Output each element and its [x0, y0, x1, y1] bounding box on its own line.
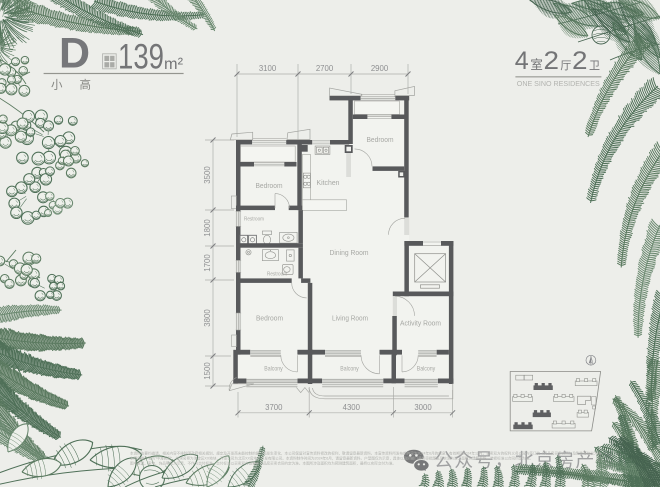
svg-text:本项目推广名为"中海官邸"，地块名称为海淀区XX地块，开发公: 本项目推广名为"中海官邸"，地块名称为海淀区XX地块，开发公司为北京XX房地产开… — [130, 456, 533, 461]
svg-text:Bedroom: Bedroom — [256, 181, 283, 190]
svg-text:1800: 1800 — [203, 219, 212, 237]
svg-text:ONE SINO RESIDENCES: ONE SINO RESIDENCES — [517, 79, 600, 88]
svg-text:卫: 卫 — [589, 60, 600, 72]
svg-text:Balcony: Balcony — [264, 366, 283, 373]
svg-text:2: 2 — [544, 47, 560, 75]
svg-text:Dining Room: Dining Room — [330, 248, 369, 257]
svg-text:Restroom: Restroom — [244, 217, 264, 223]
svg-text:小: 小 — [51, 79, 63, 92]
svg-text:3700: 3700 — [265, 403, 283, 412]
svg-text:4: 4 — [515, 47, 529, 75]
svg-text:Bedroom: Bedroom — [256, 314, 283, 323]
svg-text:4300: 4300 — [343, 403, 361, 412]
svg-text:D: D — [59, 30, 90, 78]
svg-text:本资料为要约邀请，相关内容不排除因政府相关规划、规定及开发商: 本资料为要约邀请，相关内容不排除因政府相关规划、规定及开发商未能控制的原因而发生… — [130, 451, 605, 456]
svg-text:3100: 3100 — [259, 64, 277, 73]
svg-text:1500: 1500 — [203, 362, 212, 380]
svg-text:139: 139 — [118, 38, 164, 77]
svg-text:3000: 3000 — [414, 403, 432, 412]
svg-text:Balcony: Balcony — [417, 366, 436, 373]
svg-text:室: 室 — [530, 57, 543, 72]
svg-text:3800: 3800 — [203, 309, 212, 327]
svg-text:Kitchen: Kitchen — [317, 178, 340, 187]
svg-text:2700: 2700 — [316, 64, 334, 73]
svg-text:m²: m² — [164, 56, 184, 73]
svg-text:Bedroom: Bedroom — [367, 135, 394, 144]
svg-text:1700: 1700 — [203, 254, 212, 272]
svg-text:图中家具、家电、饰品等仅为示意，不作为交付标准。交付标准以买: 图中家具、家电、饰品等仅为示意，不作为交付标准。交付标准以买卖双方签署的商品房买… — [130, 461, 396, 466]
svg-text:Living Room: Living Room — [332, 314, 368, 323]
svg-text:2: 2 — [572, 47, 588, 75]
svg-text:厅: 厅 — [560, 60, 571, 72]
svg-text:Balcony: Balcony — [340, 366, 359, 373]
svg-text:高: 高 — [80, 78, 92, 92]
svg-text:3500: 3500 — [203, 166, 212, 184]
svg-text:Restroom: Restroom — [267, 272, 287, 278]
svg-text:2900: 2900 — [371, 64, 389, 73]
svg-text:Activity Room: Activity Room — [400, 319, 441, 328]
